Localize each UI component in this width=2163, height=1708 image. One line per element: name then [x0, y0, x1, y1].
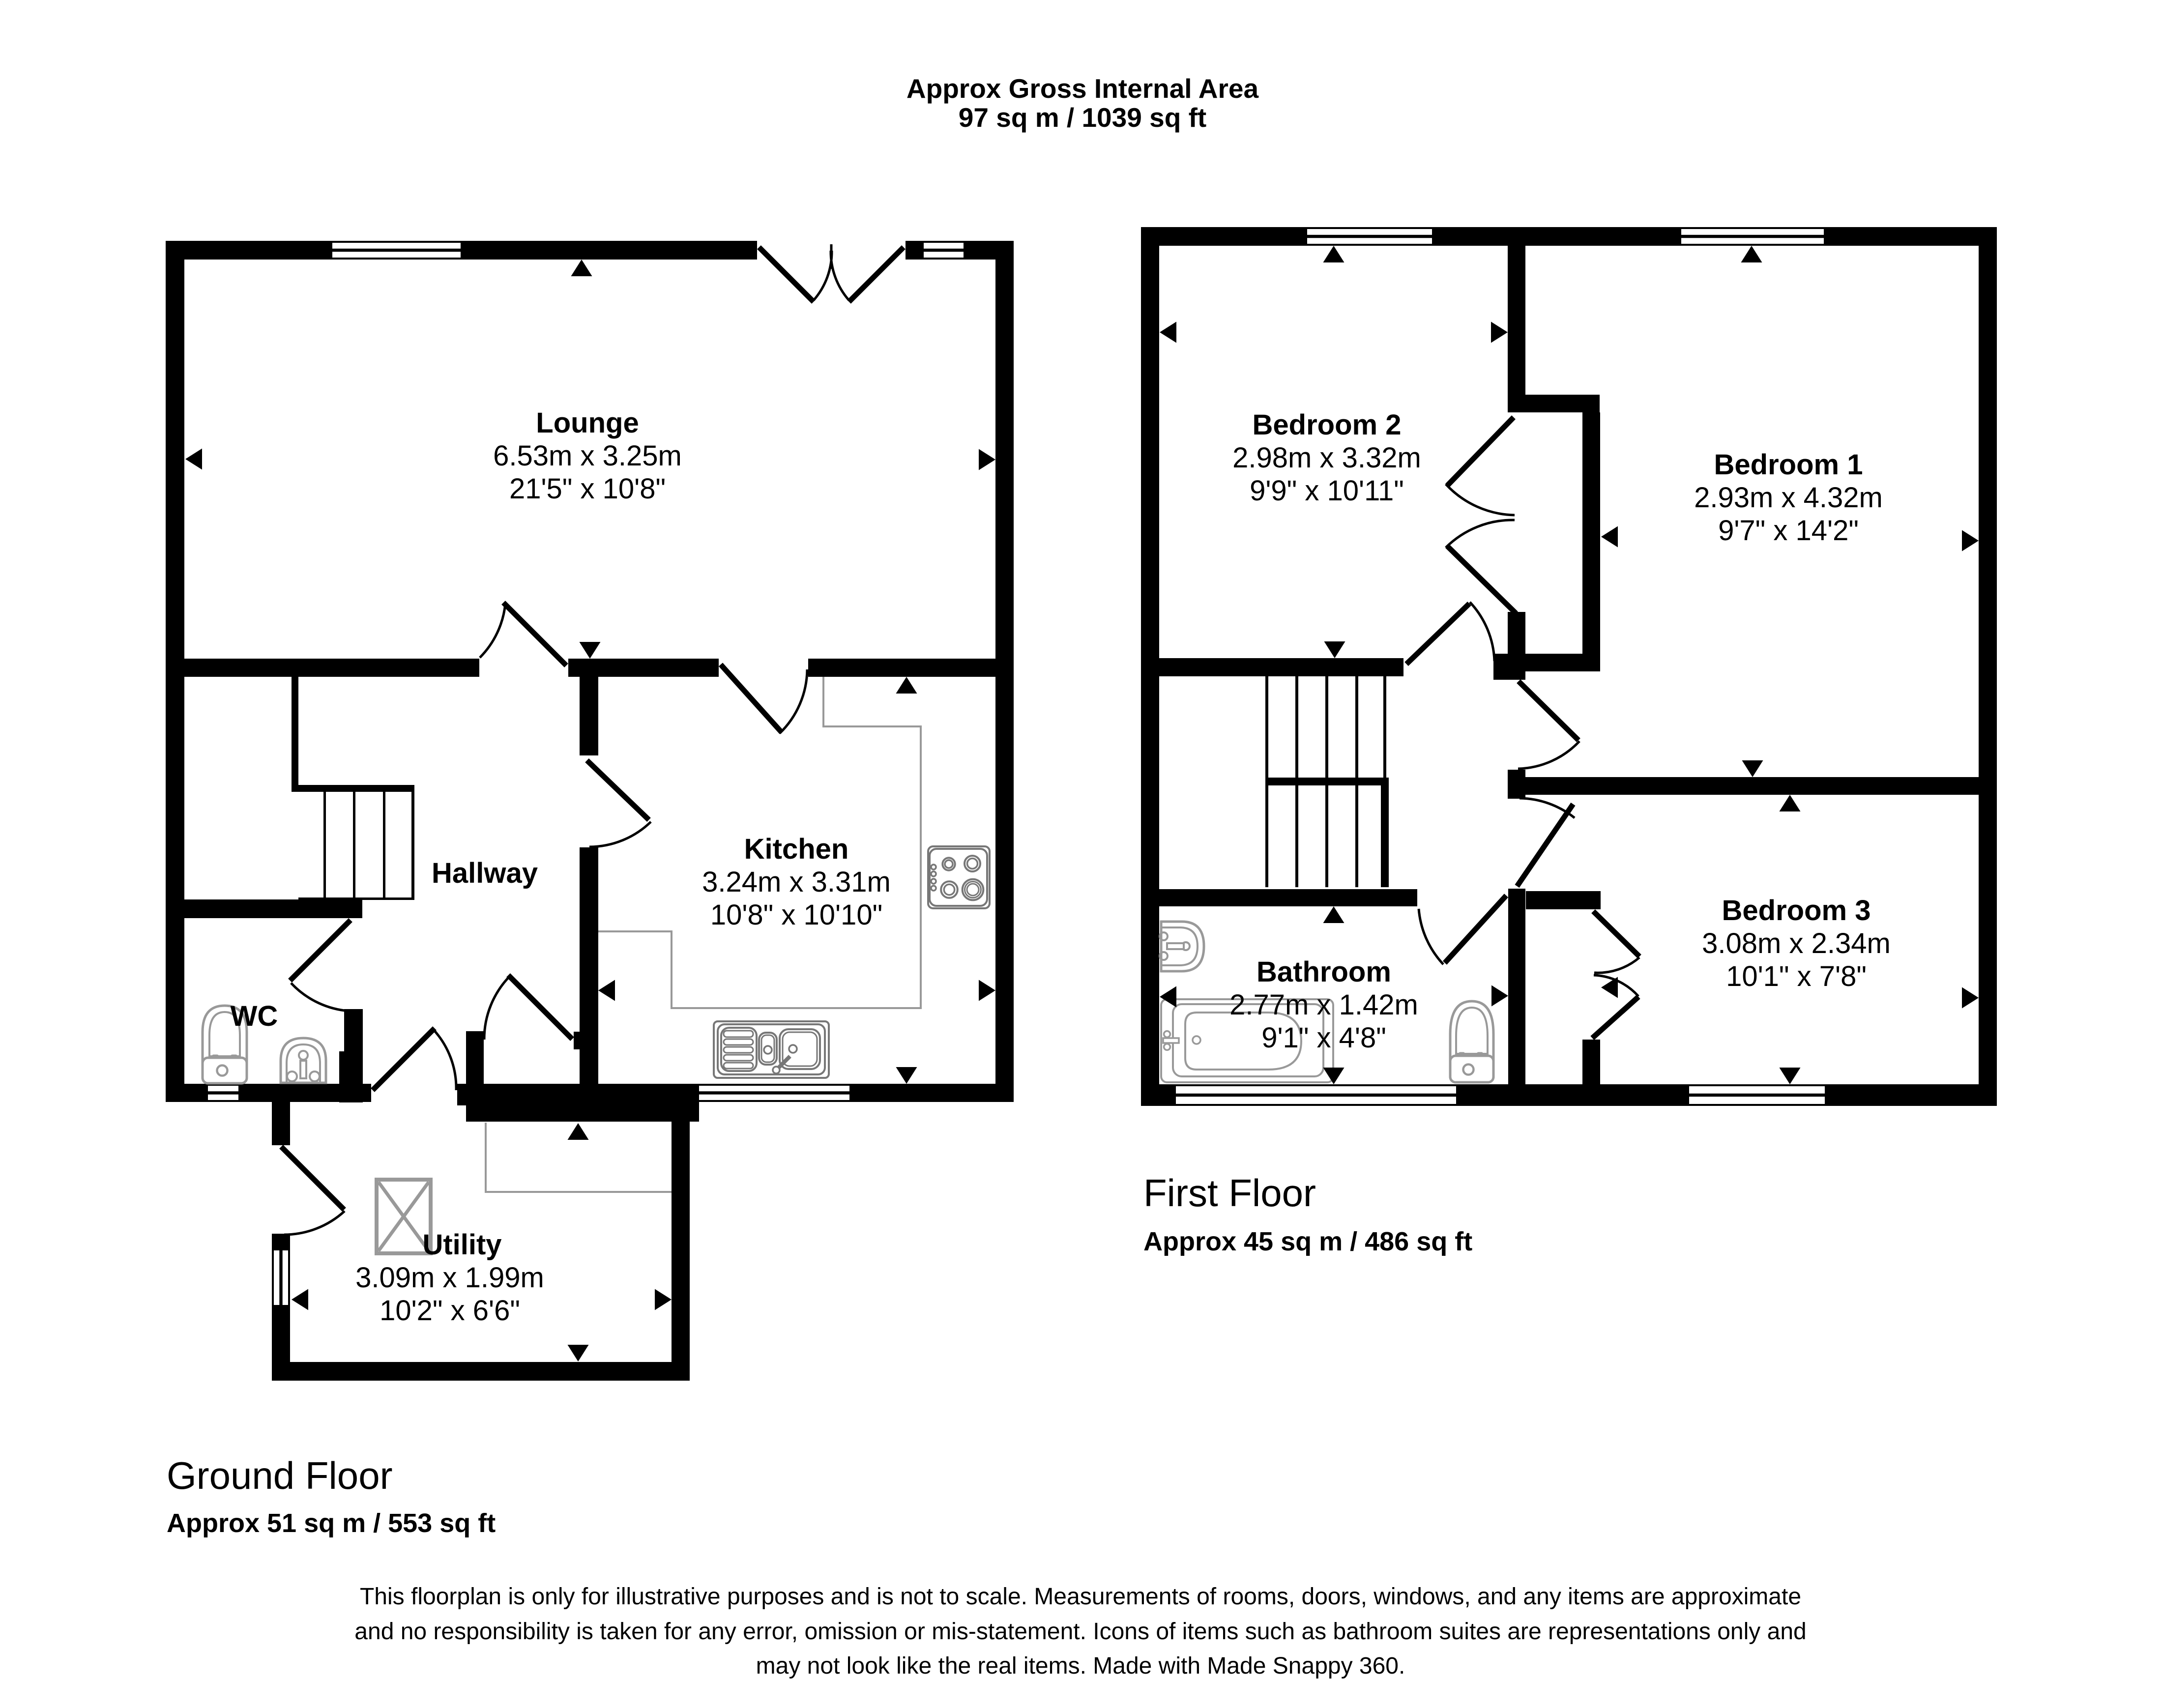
svg-text:and no responsibility is taken: and no responsibility is taken for any e… — [354, 1619, 1806, 1645]
svg-text:WC: WC — [231, 1000, 278, 1032]
svg-text:21'5" x 10'8": 21'5" x 10'8" — [509, 473, 666, 505]
svg-text:10'1" x 7'8": 10'1" x 7'8" — [1726, 960, 1867, 992]
svg-text:2.77m x 1.42m: 2.77m x 1.42m — [1229, 989, 1418, 1021]
svg-text:Approx Gross Internal Area: Approx Gross Internal Area — [906, 73, 1259, 104]
svg-text:2.98m x 3.32m: 2.98m x 3.32m — [1232, 442, 1421, 474]
svg-text:3.08m x 2.34m: 3.08m x 2.34m — [1702, 927, 1891, 959]
svg-text:9'9" x 10'11": 9'9" x 10'11" — [1250, 475, 1404, 507]
svg-text:3.09m x 1.99m: 3.09m x 1.99m — [355, 1262, 544, 1294]
svg-text:Bedroom 3: Bedroom 3 — [1722, 895, 1871, 926]
svg-text:2.93m x 4.32m: 2.93m x 4.32m — [1694, 482, 1883, 514]
svg-text:97 sq m / 1039 sq ft: 97 sq m / 1039 sq ft — [959, 102, 1206, 133]
svg-text:10'8" x 10'10": 10'8" x 10'10" — [710, 899, 882, 931]
svg-text:Approx 51 sq m / 553 sq ft: Approx 51 sq m / 553 sq ft — [167, 1508, 496, 1538]
svg-text:Hallway: Hallway — [432, 857, 538, 889]
svg-text:Utility: Utility — [422, 1229, 501, 1261]
svg-text:Bathroom: Bathroom — [1257, 956, 1391, 988]
svg-text:First Floor: First Floor — [1143, 1171, 1316, 1215]
svg-text:Lounge: Lounge — [536, 407, 639, 439]
svg-text:Ground Floor: Ground Floor — [167, 1454, 393, 1497]
svg-text:Kitchen: Kitchen — [744, 833, 849, 865]
svg-text:Bedroom 1: Bedroom 1 — [1714, 449, 1863, 481]
svg-text:Bedroom 2: Bedroom 2 — [1253, 409, 1402, 441]
svg-text:This floorplan is only for ill: This floorplan is only for illustrative … — [360, 1584, 1801, 1610]
svg-text:Approx 45 sq m / 486 sq ft: Approx 45 sq m / 486 sq ft — [1143, 1227, 1472, 1256]
svg-text:6.53m x 3.25m: 6.53m x 3.25m — [493, 440, 682, 472]
svg-text:may not look like the real ite: may not look like the real items. Made w… — [756, 1653, 1405, 1679]
svg-text:9'1" x 4'8": 9'1" x 4'8" — [1261, 1022, 1386, 1054]
svg-text:3.24m x 3.31m: 3.24m x 3.31m — [702, 866, 891, 898]
svg-text:10'2" x 6'6": 10'2" x 6'6" — [380, 1295, 520, 1327]
svg-text:9'7" x 14'2": 9'7" x 14'2" — [1718, 515, 1859, 547]
